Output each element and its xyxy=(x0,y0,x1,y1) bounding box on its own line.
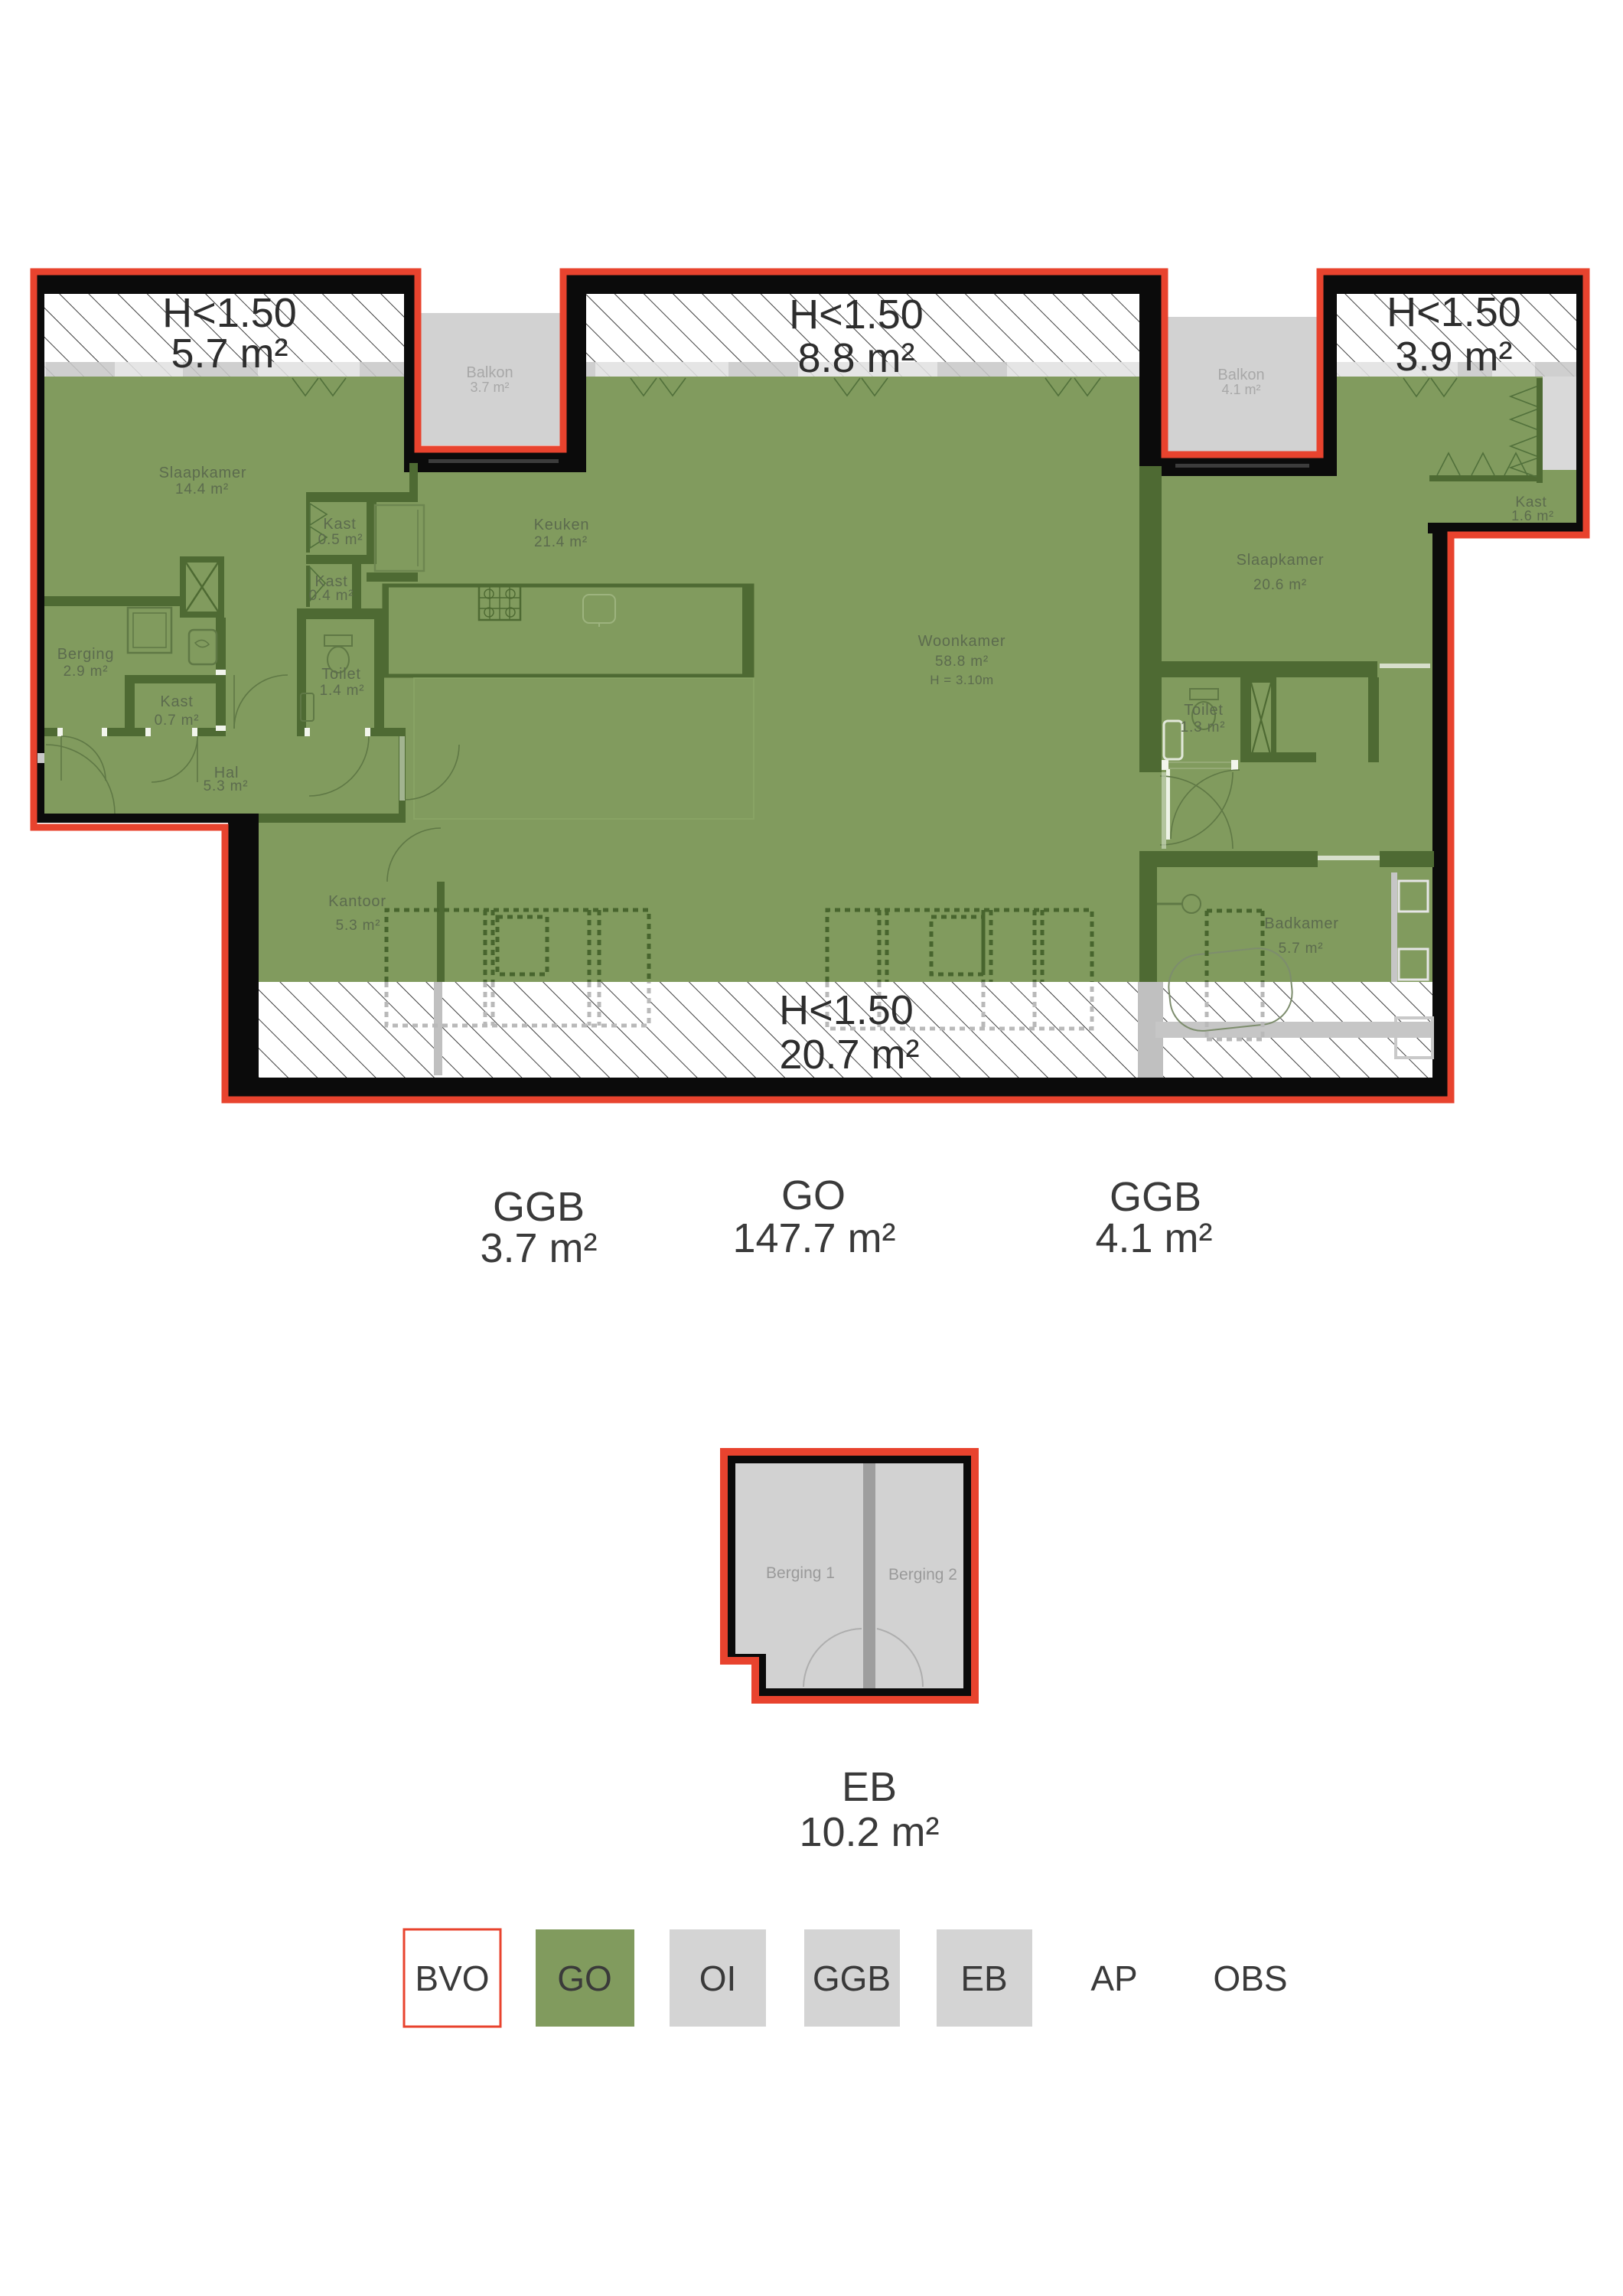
svg-text:Kast: Kast xyxy=(160,693,193,710)
svg-text:1.3 m²: 1.3 m² xyxy=(1181,719,1226,735)
svg-text:1.6 m²: 1.6 m² xyxy=(1511,508,1554,523)
svg-text:3.9 m²: 3.9 m² xyxy=(1395,334,1512,380)
svg-text:GO: GO xyxy=(781,1172,846,1218)
svg-text:4.1 m²: 4.1 m² xyxy=(1221,382,1260,397)
svg-text:EB: EB xyxy=(842,1764,897,1810)
svg-text:5.3 m²: 5.3 m² xyxy=(336,918,381,934)
svg-text:0.4 m²: 0.4 m² xyxy=(309,588,354,604)
svg-text:BVO: BVO xyxy=(415,1958,489,1998)
svg-text:8.8 m²: 8.8 m² xyxy=(797,335,914,381)
svg-text:10.2 m²: 10.2 m² xyxy=(799,1809,939,1855)
svg-text:Woonkamer: Woonkamer xyxy=(918,633,1006,650)
svg-text:GGB: GGB xyxy=(813,1958,891,1998)
svg-text:20.7 m²: 20.7 m² xyxy=(779,1032,919,1078)
svg-text:14.4 m²: 14.4 m² xyxy=(175,481,229,497)
svg-text:H<1.50: H<1.50 xyxy=(1387,289,1521,335)
svg-text:5.7 m²: 5.7 m² xyxy=(1279,941,1324,957)
svg-text:21.4 m²: 21.4 m² xyxy=(534,534,588,550)
svg-text:AP: AP xyxy=(1090,1958,1137,1998)
svg-text:OI: OI xyxy=(699,1958,737,1998)
svg-text:H<1.50: H<1.50 xyxy=(779,987,914,1033)
svg-text:Berging: Berging xyxy=(57,646,115,663)
svg-text:Toilet: Toilet xyxy=(321,666,361,683)
svg-text:3.7 m²: 3.7 m² xyxy=(470,380,509,395)
svg-text:GGB: GGB xyxy=(493,1184,585,1230)
svg-text:Balkon: Balkon xyxy=(466,364,513,381)
svg-text:147.7 m²: 147.7 m² xyxy=(732,1215,895,1261)
svg-text:0.7 m²: 0.7 m² xyxy=(155,713,200,729)
svg-text:OBS: OBS xyxy=(1213,1958,1287,1998)
svg-text:4.1 m²: 4.1 m² xyxy=(1095,1215,1212,1261)
svg-text:H<1.50: H<1.50 xyxy=(789,292,924,338)
svg-text:H<1.50: H<1.50 xyxy=(162,290,297,336)
svg-text:58.8 m²: 58.8 m² xyxy=(935,654,989,670)
svg-text:Berging 1: Berging 1 xyxy=(766,1564,835,1582)
svg-text:Toilet: Toilet xyxy=(1184,702,1224,719)
svg-text:H = 3.10m: H = 3.10m xyxy=(930,673,993,687)
svg-text:5.7 m²: 5.7 m² xyxy=(171,331,288,377)
svg-text:GO: GO xyxy=(557,1958,612,1998)
svg-text:EB: EB xyxy=(960,1958,1007,1998)
svg-text:Kast: Kast xyxy=(323,516,356,533)
svg-text:Balkon: Balkon xyxy=(1217,367,1264,383)
svg-text:Slaapkamer: Slaapkamer xyxy=(159,465,247,481)
svg-text:2.9 m²: 2.9 m² xyxy=(64,664,109,680)
svg-text:20.6 m²: 20.6 m² xyxy=(1253,577,1307,593)
svg-text:5.3 m²: 5.3 m² xyxy=(204,778,249,794)
svg-text:Keuken: Keuken xyxy=(534,517,590,533)
svg-text:Slaapkamer: Slaapkamer xyxy=(1237,552,1325,569)
svg-text:Berging 2: Berging 2 xyxy=(888,1566,957,1583)
svg-text:0.5 m²: 0.5 m² xyxy=(318,532,363,548)
svg-text:3.7 m²: 3.7 m² xyxy=(480,1225,597,1271)
svg-text:Kantoor: Kantoor xyxy=(328,893,386,910)
svg-text:1.4 m²: 1.4 m² xyxy=(320,683,365,699)
svg-text:GGB: GGB xyxy=(1110,1174,1201,1220)
svg-text:Badkamer: Badkamer xyxy=(1264,915,1339,932)
